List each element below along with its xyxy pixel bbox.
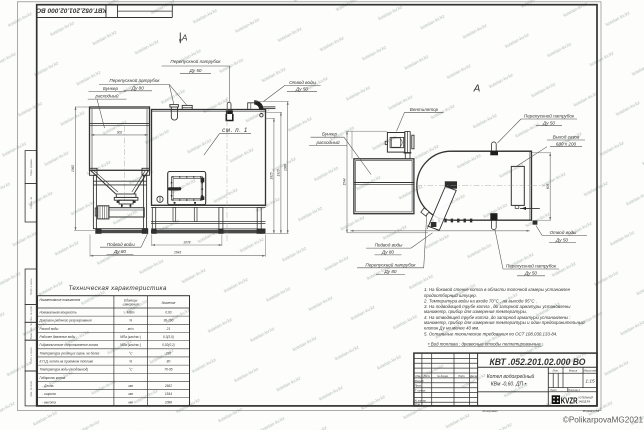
svg-text:Ду 50: Ду 50 xyxy=(189,68,202,73)
svg-text:Перв. примен.: Перв. примен. xyxy=(29,158,33,176)
svg-text:2. Температура воды на входе: 2. Температура воды на входе 70°С , на в… xyxy=(423,299,537,304)
svg-text:Ду 50: Ду 50 xyxy=(524,271,537,276)
svg-text:Бункер: Бункер xyxy=(322,132,337,137)
svg-text:Дата: Дата xyxy=(469,374,477,378)
svg-text:Рабочее давление воды: Рабочее давление воды xyxy=(40,335,76,339)
svg-text:2662: 2662 xyxy=(164,384,172,388)
svg-text:Разраб.: Разраб. xyxy=(415,379,425,383)
svg-text:манометр, прибор для измерения: манометр, прибор для измерения температу… xyxy=(424,320,585,325)
svg-text:Инв. № дубл.: Инв. № дубл. xyxy=(29,305,33,321)
svg-text:К.П.Д. котла на приемном топли: К.П.Д. котла на приемном топливе xyxy=(40,360,94,364)
svg-text:Ду 80: Ду 80 xyxy=(381,250,394,255)
svg-text:Подвод воды: Подвод воды xyxy=(375,243,403,248)
svg-text:2088: 2088 xyxy=(283,164,287,172)
svg-text:см. п. 1: см. п. 1 xyxy=(222,127,248,134)
svg-text:Ду 80: Ду 80 xyxy=(384,269,397,274)
svg-text:902: 902 xyxy=(117,131,123,135)
svg-text:2088: 2088 xyxy=(164,400,172,404)
svg-text:- высота: - высота xyxy=(40,400,57,404)
svg-text:Подвод воды: Подвод воды xyxy=(107,242,135,247)
svg-text:70-95: 70-95 xyxy=(164,368,172,372)
svg-text:Котел водогрейный: Котел водогрейный xyxy=(487,373,535,380)
svg-text:ЗАВОД РФ: ЗАВОД РФ xyxy=(579,400,591,403)
svg-text:Гидравлическое сопротивление к: Гидравлическое сопротивление котла xyxy=(40,343,99,347)
svg-text:• Вид топлива : древесные от: • Вид топлива : древесные отходы пеллети… xyxy=(428,341,543,346)
svg-text:Выход газов: Выход газов xyxy=(553,135,580,140)
svg-text:Бункер: Бункер xyxy=(103,86,118,91)
svg-text:Масштаб: Масштаб xyxy=(583,369,596,373)
svg-text:Изм: Изм xyxy=(415,374,420,378)
svg-text:измерения: измерения xyxy=(123,303,139,307)
svg-text:А: А xyxy=(473,84,481,95)
svg-text:МВт: МВт xyxy=(127,311,135,315)
svg-text:Н. контр.: Н. контр. xyxy=(415,398,427,402)
svg-text:МПа (кгс/см² ): МПа (кгс/см² ) xyxy=(120,343,141,347)
svg-text:Масса: Масса xyxy=(569,369,578,373)
svg-text:Подп. и дата: Подп. и дата xyxy=(29,278,33,295)
svg-text:1:15: 1:15 xyxy=(585,378,595,384)
svg-text:Ду 80: Ду 80 xyxy=(113,249,126,254)
svg-text:30-100: 30-100 xyxy=(163,319,173,323)
svg-text:Лист: Лист xyxy=(549,388,558,392)
svg-text:Инв. № подл.: Инв. № подл. xyxy=(29,380,33,396)
svg-text:Ду 50: Ду 50 xyxy=(295,86,308,91)
svg-text:№ докум.: № докум. xyxy=(437,374,449,378)
svg-text:21: 21 xyxy=(166,327,171,331)
svg-text:Пров.: Пров. xyxy=(415,384,422,388)
svg-text:Копировал: Копировал xyxy=(483,409,498,413)
svg-text:расходный: расходный xyxy=(315,139,340,145)
svg-text:Перепускной патрубок: Перепускной патрубок xyxy=(109,77,160,83)
svg-text:600 х 200: 600 х 200 xyxy=(556,141,577,146)
svg-text:80: 80 xyxy=(167,360,171,364)
svg-text:Отвод воды: Отвод воды xyxy=(289,80,316,85)
svg-text:Перепускной патрубок: Перепускной патрубок xyxy=(506,263,557,269)
svg-text:Справ. №: Справ. № xyxy=(29,197,33,209)
svg-text:Перепускной патрубок: Перепускной патрубок xyxy=(365,261,416,267)
svg-text:м³/ч: м³/ч xyxy=(128,327,134,331)
svg-text:Вентилятор: Вентилятор xyxy=(410,107,439,112)
svg-text:©PolikarpovaMG2021: ©PolikarpovaMG2021 xyxy=(563,416,644,425)
svg-text:609: 609 xyxy=(546,184,550,190)
svg-text:Лист: Лист xyxy=(422,374,431,378)
svg-text:Наименование показателя: Наименование показателя xyxy=(40,298,81,302)
svg-text:Утв.: Утв. xyxy=(415,402,421,406)
svg-text:Техническая характеристика: Техническая характеристика xyxy=(68,285,166,292)
svg-text:Ду 80: Ду 80 xyxy=(131,86,144,91)
svg-text:1825: 1825 xyxy=(270,172,274,179)
svg-text:клапан Ду не менее 40 мм.: клапан Ду не менее 40 мм. xyxy=(424,326,479,331)
svg-text:МПа (кгс/см² ): МПа (кгс/см² ) xyxy=(120,335,141,339)
svg-text:КВм -0,60. ДП •: КВм -0,60. ДП • xyxy=(491,381,527,387)
svg-text:- ширина: - ширина xyxy=(40,392,56,396)
svg-text:Лит.: Лит. xyxy=(551,369,559,373)
svg-text:Формат А3: Формат А3 xyxy=(583,409,600,413)
svg-text:- Длина: - Длина xyxy=(40,384,54,388)
svg-text:1544: 1544 xyxy=(343,178,347,185)
svg-text:Диапазон рабочего регулировани: Диапазон рабочего регулирования xyxy=(39,319,92,323)
svg-text:КВТ .052.201.02.000 ВО: КВТ .052.201.02.000 ВО xyxy=(490,357,586,367)
svg-text:Подп. и дата: Подп. и дата xyxy=(29,347,33,364)
svg-text:%: % xyxy=(129,360,132,364)
svg-text:230: 230 xyxy=(165,351,172,355)
svg-text:КОТЕЛЬНЫЙ: КОТЕЛЬНЫЙ xyxy=(579,397,594,400)
svg-text:%: % xyxy=(129,319,132,323)
svg-text:Ду 50: Ду 50 xyxy=(555,237,568,242)
svg-text:манометр, прибор для измерения: манометр, прибор для измерения температу… xyxy=(424,309,527,314)
svg-text:Габариты котла: Габариты котла xyxy=(40,376,66,380)
svg-text:Расход воды: Расход воды xyxy=(40,327,60,331)
svg-text:1544: 1544 xyxy=(165,392,172,396)
svg-text:1920: 1920 xyxy=(277,169,281,176)
svg-text:Температура уходящих газов, не: Температура уходящих газов, не более xyxy=(40,351,100,355)
svg-text:1078: 1078 xyxy=(183,240,190,244)
svg-text:Отвод воды: Отвод воды xyxy=(550,230,577,235)
svg-text:4. На отводящей трубе котла ,: 4. На отводящей трубе котла ,до запорной… xyxy=(424,315,571,320)
svg-text:А: А xyxy=(181,32,188,42)
svg-text:Номинальная мощность: Номинальная мощность xyxy=(40,311,78,315)
svg-text:0,02(0,2): 0,02(0,2) xyxy=(162,343,175,347)
svg-text:Взам. инв. №: Взам. инв. № xyxy=(29,323,33,339)
svg-text:Температура воды (вход/выход): Температура воды (вход/выход) xyxy=(40,368,89,372)
svg-text:0,60: 0,60 xyxy=(165,311,171,315)
svg-text:Т. контр.: Т. контр. xyxy=(415,389,426,393)
svg-text:KVZR: KVZR xyxy=(561,395,578,405)
svg-text:0,3(3,0): 0,3(3,0) xyxy=(163,335,174,339)
svg-text:Перепускной патрубок: Перепускной патрубок xyxy=(524,113,575,119)
svg-text:Листов 1: Листов 1 xyxy=(567,388,580,392)
svg-text:Перепускной патрубок: Перепускной патрубок xyxy=(170,58,221,64)
svg-text:2643: 2643 xyxy=(173,251,181,255)
svg-text:Значение: Значение xyxy=(161,301,175,305)
svg-text:1962: 1962 xyxy=(71,165,75,172)
svg-text:расходный: расходный xyxy=(94,93,119,99)
svg-text:5. Остальные технические треб: 5. Остальные технические требования по О… xyxy=(424,331,557,336)
svg-text:Подп.: Подп. xyxy=(458,374,465,378)
svg-text:продоотборный штуцер.: продоотборный штуцер. xyxy=(424,293,477,298)
svg-text:КВТ.052.201.02.000 ВО: КВТ.052.201.02.000 ВО xyxy=(36,7,106,14)
svg-text:1. На боковой стенке котла в: 1. На боковой стенке котла в области топ… xyxy=(424,287,571,292)
svg-text:Ду 50: Ду 50 xyxy=(542,120,555,125)
